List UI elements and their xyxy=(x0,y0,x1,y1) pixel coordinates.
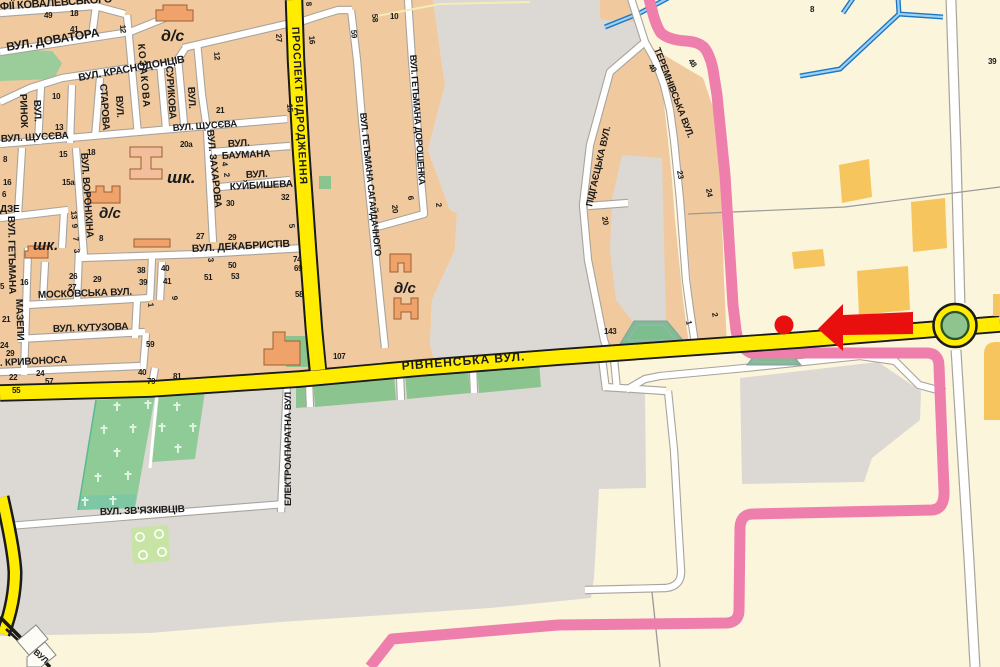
svg-text:27: 27 xyxy=(68,283,77,292)
svg-text:41: 41 xyxy=(70,25,79,34)
svg-text:шк.: шк. xyxy=(167,168,195,187)
svg-text:ВУЛ. ГЕТЬМАНА: ВУЛ. ГЕТЬМАНА xyxy=(5,216,17,294)
svg-text:40: 40 xyxy=(138,368,147,377)
svg-text:69: 69 xyxy=(294,264,303,273)
svg-text:41: 41 xyxy=(163,277,172,286)
svg-text:50: 50 xyxy=(228,261,237,270)
svg-text:81: 81 xyxy=(173,372,182,381)
svg-text:21: 21 xyxy=(216,106,225,115)
svg-text:ВУЛ.: ВУЛ. xyxy=(246,169,269,181)
svg-text:58: 58 xyxy=(295,290,304,299)
svg-text:ДЗЕ: ДЗЕ xyxy=(0,204,20,215)
svg-text:39: 39 xyxy=(139,278,148,287)
svg-text:10: 10 xyxy=(390,12,399,21)
svg-text:40: 40 xyxy=(161,264,170,273)
svg-text:59: 59 xyxy=(146,340,155,349)
svg-text:20а: 20а xyxy=(180,140,193,149)
svg-text:13: 13 xyxy=(55,123,64,132)
svg-text:39: 39 xyxy=(988,57,997,66)
svg-text:МАЗЕПИ: МАЗЕПИ xyxy=(13,299,25,341)
svg-text:15а: 15а xyxy=(62,178,75,187)
svg-text:74: 74 xyxy=(293,255,302,264)
svg-text:29: 29 xyxy=(228,233,237,242)
svg-text:107: 107 xyxy=(333,352,346,361)
svg-text:шк.: шк. xyxy=(33,237,58,254)
svg-text:22: 22 xyxy=(9,373,18,382)
svg-text:30: 30 xyxy=(226,199,235,208)
svg-text:15: 15 xyxy=(59,150,68,159)
svg-text:55: 55 xyxy=(12,386,21,395)
svg-text:38: 38 xyxy=(137,266,146,275)
svg-text:16: 16 xyxy=(20,278,29,287)
svg-text:ВУЛ.: ВУЛ. xyxy=(185,87,197,110)
svg-text:21: 21 xyxy=(2,315,11,324)
svg-text:51: 51 xyxy=(204,273,213,282)
svg-text:53: 53 xyxy=(231,272,240,281)
svg-text:49: 49 xyxy=(44,11,53,20)
svg-text:79: 79 xyxy=(147,377,156,386)
svg-text:32: 32 xyxy=(281,193,290,202)
svg-text:29: 29 xyxy=(6,349,15,358)
svg-text:143: 143 xyxy=(604,327,617,336)
svg-text:16: 16 xyxy=(3,178,12,187)
svg-text:10: 10 xyxy=(52,92,61,101)
svg-text:24: 24 xyxy=(36,369,45,378)
svg-text:18: 18 xyxy=(70,9,79,18)
svg-text:РИНОК: РИНОК xyxy=(17,94,29,129)
svg-text:ВУЛ.: ВУЛ. xyxy=(228,138,251,150)
svg-text:д/с: д/с xyxy=(161,28,184,45)
svg-text:д/с: д/с xyxy=(99,205,121,222)
svg-text:ВУЛ.: ВУЛ. xyxy=(113,96,125,119)
svg-text:57: 57 xyxy=(45,377,54,386)
svg-text:д/с: д/с xyxy=(394,280,416,297)
svg-text:29: 29 xyxy=(93,275,102,284)
svg-text:ЕЛЕКТРОАПАРАТНА ВУЛ: ЕЛЕКТРОАПАРАТНА ВУЛ xyxy=(283,392,294,506)
svg-text:27: 27 xyxy=(196,232,205,241)
svg-text:26: 26 xyxy=(69,272,78,281)
svg-text:ВУЛ.: ВУЛ. xyxy=(31,100,43,122)
svg-text:18: 18 xyxy=(87,148,96,157)
